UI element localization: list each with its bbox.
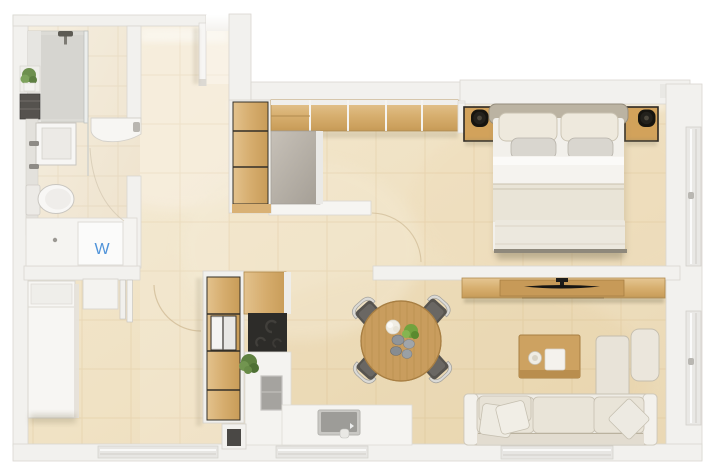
svg-text:W: W (94, 241, 110, 258)
